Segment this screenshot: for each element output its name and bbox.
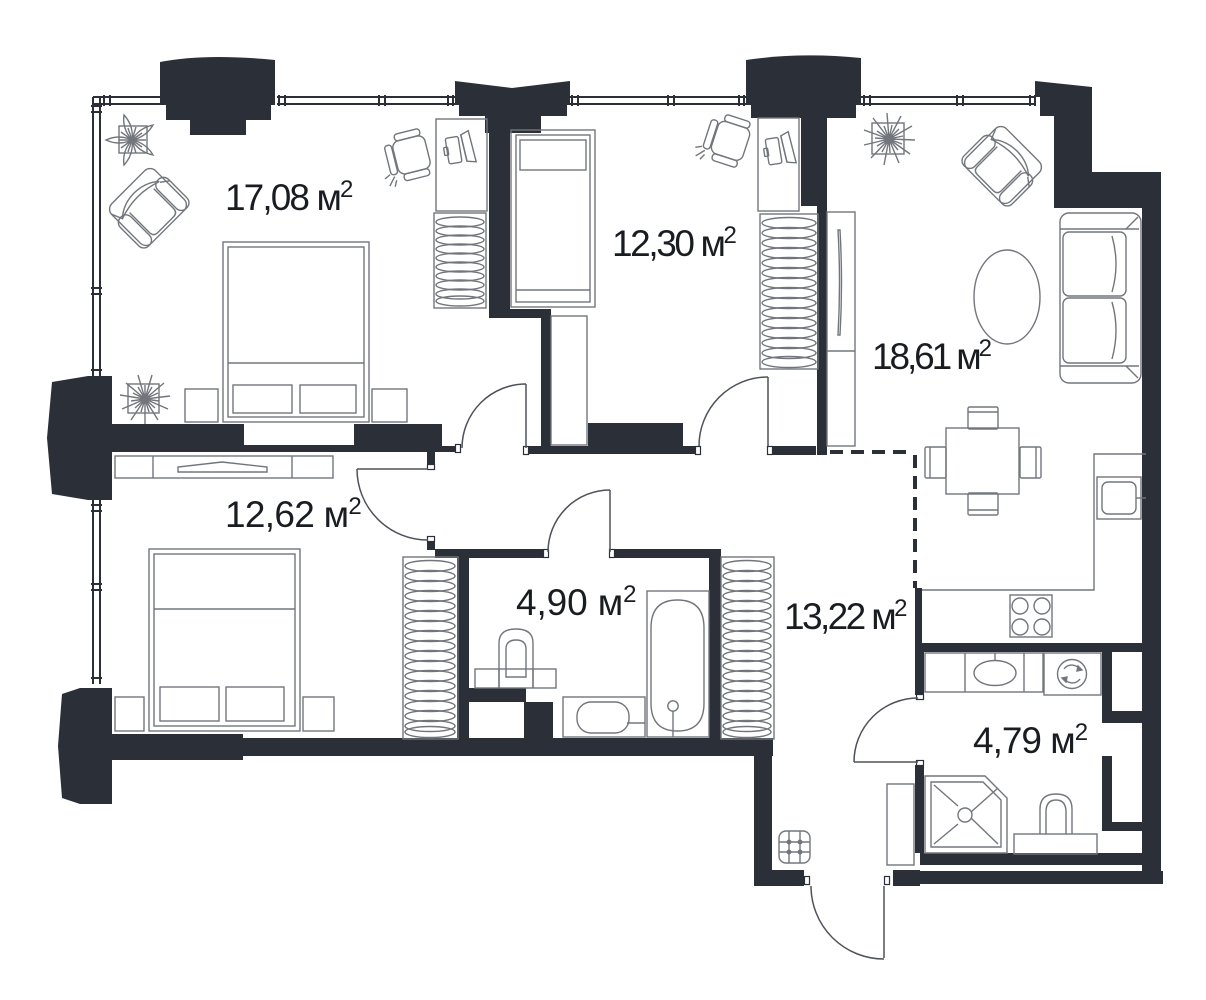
svg-text:4,90 м2: 4,90 м2 (516, 581, 636, 623)
svg-text:18,61 м2: 18,61 м2 (872, 335, 992, 377)
svg-text:4,79 м2: 4,79 м2 (973, 719, 1088, 761)
svg-text:17,08 м2: 17,08 м2 (225, 176, 353, 218)
svg-text:13,22 м2: 13,22 м2 (784, 595, 907, 637)
svg-text:12,30 м2: 12,30 м2 (612, 222, 737, 264)
svg-text:12,62 м2: 12,62 м2 (225, 493, 361, 535)
